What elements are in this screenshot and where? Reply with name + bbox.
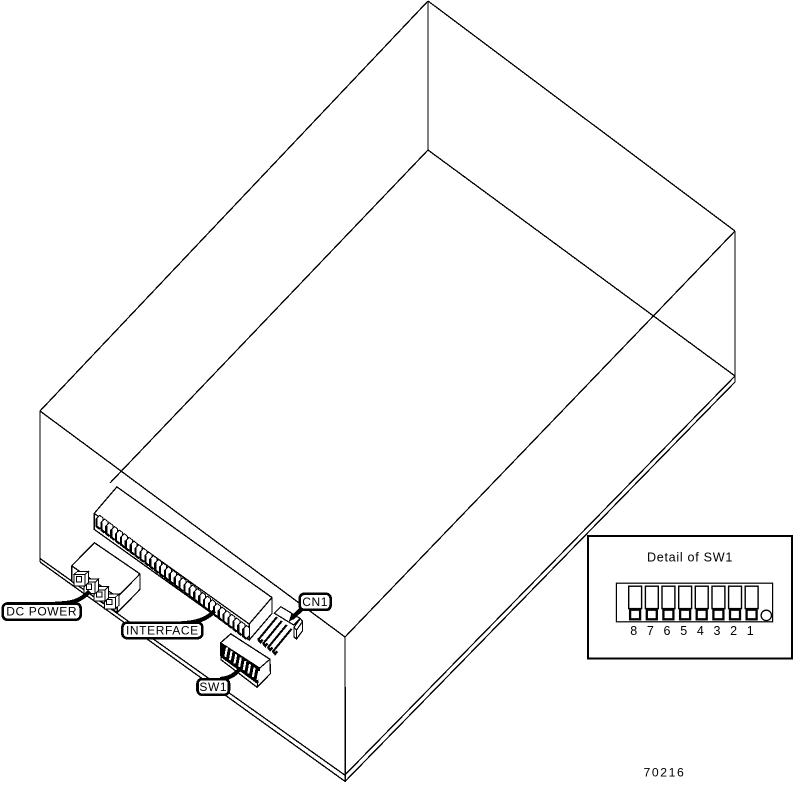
svg-text:7: 7	[647, 624, 654, 638]
svg-text:3: 3	[714, 624, 721, 638]
svg-text:2: 2	[730, 624, 737, 638]
svg-text:DC POWER: DC POWER	[6, 605, 77, 619]
svg-text:8: 8	[630, 624, 637, 638]
svg-text:1: 1	[747, 624, 754, 638]
svg-text:Detail of SW1: Detail of SW1	[647, 551, 733, 565]
svg-text:5: 5	[680, 624, 687, 638]
svg-text:INTERFACE: INTERFACE	[126, 624, 199, 638]
svg-text:SW1: SW1	[199, 680, 227, 694]
svg-text:CN1: CN1	[302, 595, 328, 609]
svg-text:6: 6	[664, 624, 671, 638]
svg-text:70216: 70216	[644, 766, 686, 780]
svg-text:4: 4	[697, 624, 704, 638]
